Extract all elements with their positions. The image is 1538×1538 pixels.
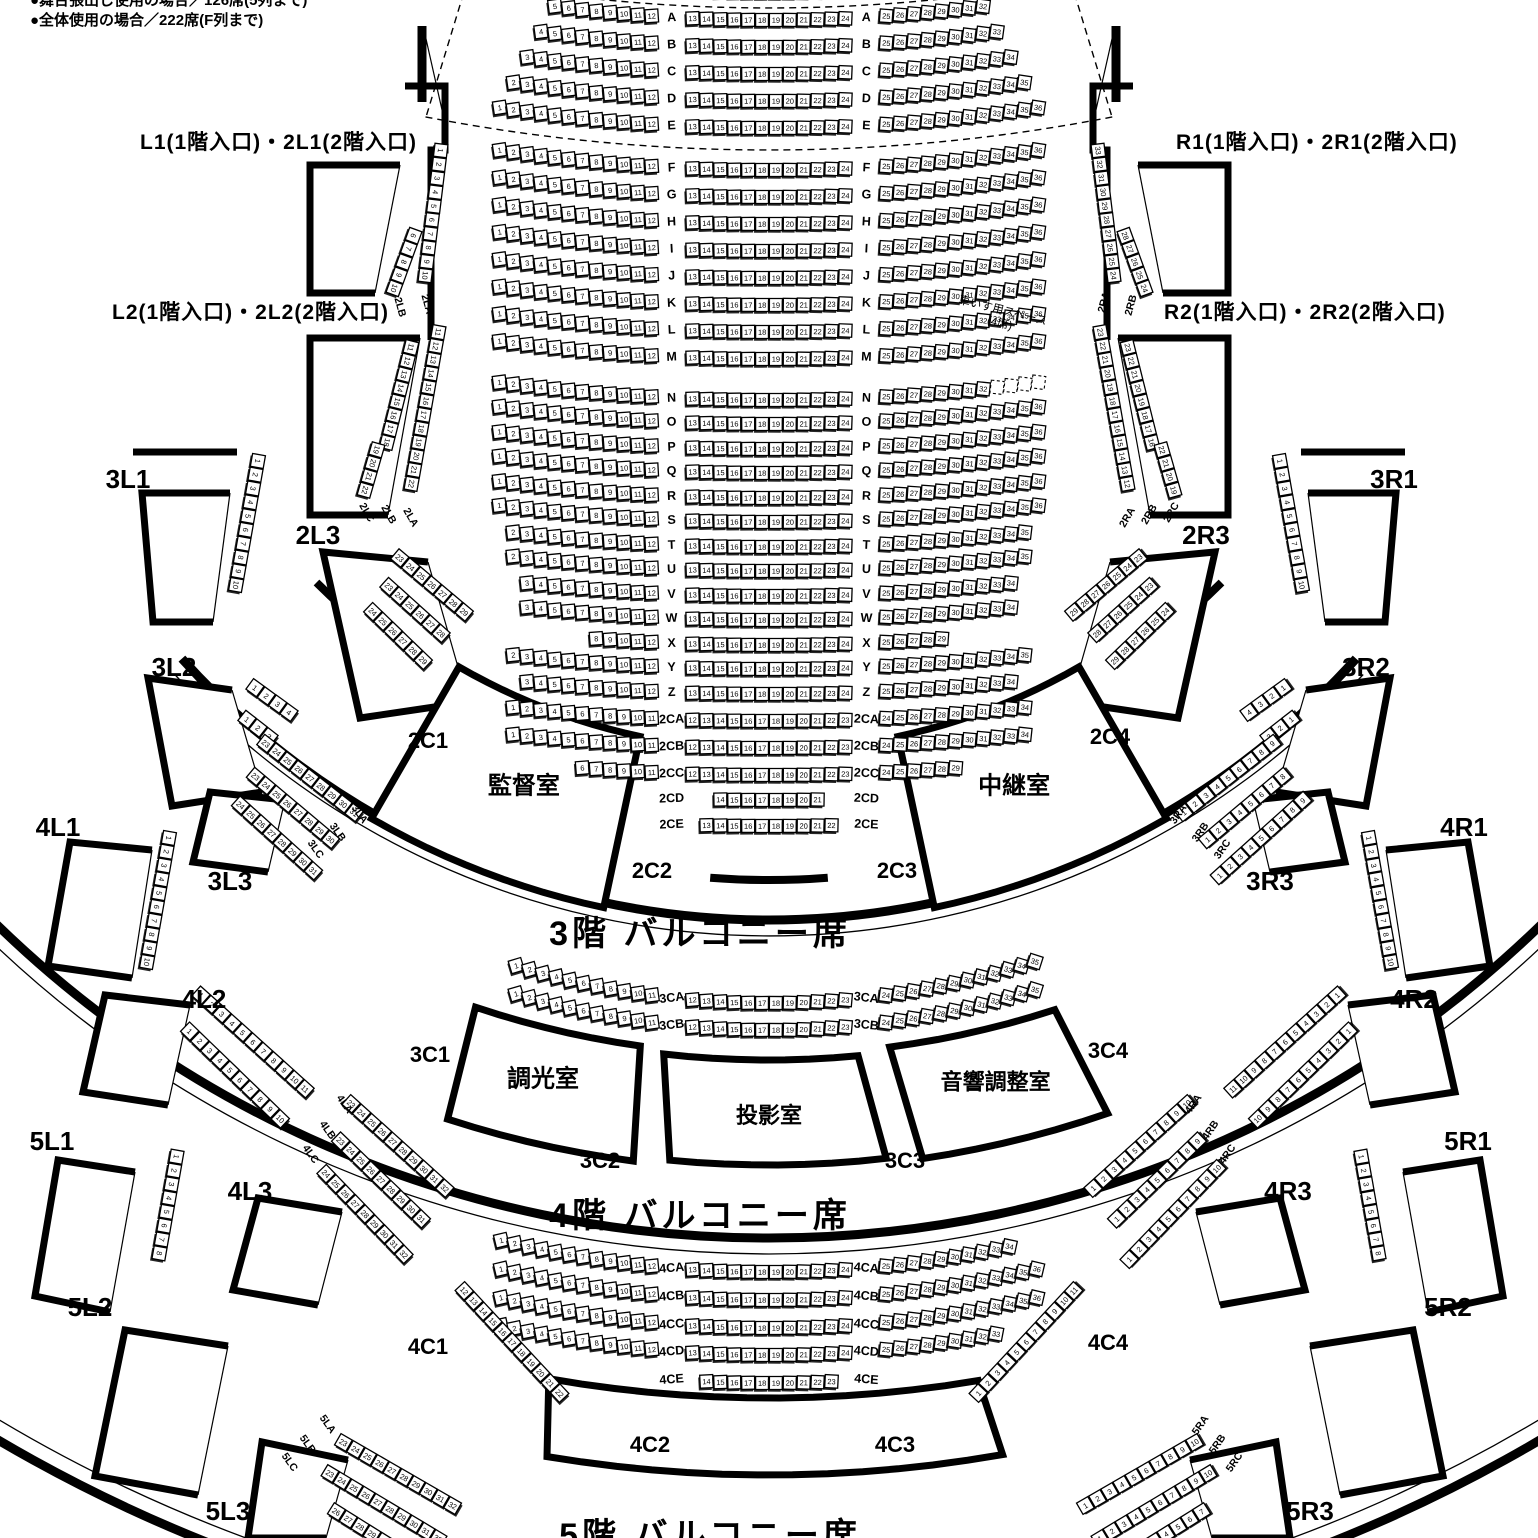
svg-text:19: 19 (772, 193, 780, 202)
svg-text:15: 15 (716, 42, 725, 51)
svg-text:18: 18 (758, 274, 766, 283)
seat: 20 (782, 217, 797, 232)
svg-text:20: 20 (786, 543, 794, 552)
seat: 19 (768, 217, 783, 232)
seat: 36 (1029, 399, 1045, 416)
seat: 17 (740, 638, 755, 653)
seat: 14 (698, 270, 713, 286)
svg-text:32: 32 (979, 556, 988, 566)
seat: 14 (698, 441, 713, 457)
seat: 13 (684, 661, 699, 677)
svg-text:15: 15 (716, 444, 725, 453)
svg-text:22: 22 (813, 273, 822, 282)
svg-text:8: 8 (594, 88, 599, 97)
svg-text:35: 35 (1020, 502, 1029, 512)
seat: 12 (643, 561, 658, 577)
seat: 9 (602, 33, 618, 50)
svg-text:26: 26 (896, 215, 905, 225)
row-label: K (862, 295, 872, 309)
seat: 4 (532, 176, 548, 193)
section-label: 2C3 (877, 858, 917, 883)
svg-text:23: 23 (827, 664, 836, 673)
svg-text:24: 24 (882, 714, 891, 723)
seat: 12 (643, 463, 658, 479)
seat: 21 (795, 1293, 810, 1309)
svg-text:15: 15 (716, 192, 725, 201)
seat: 34 (1002, 526, 1018, 543)
svg-text:14: 14 (702, 395, 711, 404)
seat: 14 (698, 216, 713, 232)
section-label: 4C1 (408, 1334, 448, 1359)
seat: 29 (932, 1251, 949, 1268)
seat: 11 (629, 511, 645, 527)
seat: 14 (698, 514, 713, 530)
section-label: 4C2 (630, 1432, 670, 1457)
seat: 26 (891, 239, 907, 255)
svg-text:21: 21 (813, 821, 822, 830)
svg-text:23: 23 (827, 246, 836, 255)
svg-text:28: 28 (923, 213, 932, 223)
row-label: Z (667, 685, 676, 699)
svg-text:13: 13 (688, 394, 697, 403)
seat: 6 (560, 28, 576, 45)
svg-text:5: 5 (552, 507, 557, 516)
svg-text:23: 23 (841, 742, 850, 751)
seat: 12 (1118, 476, 1135, 494)
seat: 28 (919, 411, 935, 427)
seat: 10 (416, 268, 432, 285)
seat: 18 (754, 1321, 769, 1336)
seat: 22 (809, 564, 824, 580)
svg-text:18: 18 (758, 665, 766, 674)
seat: 6 (560, 653, 576, 669)
svg-text:18: 18 (758, 616, 766, 625)
seat: 3 (518, 147, 534, 164)
svg-text:28: 28 (923, 413, 932, 423)
svg-text:16: 16 (730, 69, 739, 78)
seat: 27 (905, 34, 921, 50)
svg-text:12: 12 (688, 715, 697, 724)
svg-text:25: 25 (882, 514, 891, 523)
svg-text:23: 23 (827, 493, 836, 502)
seat: 14 (698, 687, 713, 703)
row-label: J (863, 268, 871, 282)
seat: 17 (740, 13, 755, 28)
seat: 10 (615, 320, 631, 336)
svg-text:8: 8 (594, 560, 599, 569)
seat: 15 (712, 325, 727, 341)
seat: 22 (809, 613, 824, 629)
seat: 9 (602, 319, 618, 335)
row-label: 4CA (853, 1260, 879, 1276)
seat: 25 (878, 439, 893, 455)
svg-text:14: 14 (702, 246, 711, 255)
seat: 16 (740, 996, 755, 1012)
seat: 24 (837, 11, 852, 27)
seat: 26 (892, 438, 908, 454)
seat: 12 (684, 767, 699, 783)
svg-text:30: 30 (951, 608, 960, 618)
seat: 4 (532, 257, 548, 274)
seat: 33 (988, 284, 1004, 301)
seat: 8 (588, 182, 604, 199)
seat: 14 (698, 1320, 713, 1336)
svg-text:6: 6 (566, 681, 571, 690)
seat: 25 (878, 684, 893, 700)
seat: 22 (402, 476, 419, 494)
svg-text:8: 8 (594, 438, 599, 447)
svg-text:29: 29 (937, 88, 946, 98)
seat: 8 (602, 736, 618, 752)
seat: 2 (518, 729, 534, 746)
seat: 16 (726, 1376, 741, 1392)
seat: 28 (919, 318, 935, 334)
row-label: 2CA (659, 711, 685, 726)
seat: 1 (504, 700, 520, 717)
seat: 11 (629, 89, 645, 105)
svg-text:32: 32 (993, 705, 1002, 715)
svg-text:17: 17 (744, 420, 752, 429)
svg-text:11: 11 (634, 65, 642, 75)
seat: 19 (768, 40, 783, 55)
seat: 13 (684, 563, 699, 579)
svg-text:13: 13 (688, 326, 697, 335)
seat: 18 (754, 466, 769, 481)
svg-text:30: 30 (951, 237, 960, 247)
seat: 3 (518, 201, 534, 218)
seat: 29 (933, 557, 949, 573)
seat: 5 (546, 26, 562, 43)
svg-text:23: 23 (827, 273, 836, 282)
svg-text:6: 6 (580, 709, 585, 718)
svg-text:20: 20 (786, 301, 794, 310)
svg-text:5: 5 (552, 655, 557, 664)
seat: 13 (684, 465, 699, 481)
svg-text:26: 26 (896, 588, 905, 597)
svg-text:7: 7 (580, 436, 585, 445)
svg-text:15: 15 (730, 743, 738, 752)
seat: 23 (823, 297, 838, 313)
svg-text:26: 26 (896, 514, 905, 523)
row-label: F (862, 160, 871, 174)
seat: 23 (823, 514, 838, 530)
svg-text:30: 30 (951, 346, 960, 356)
svg-text:8: 8 (594, 634, 599, 643)
seat: 30 (947, 207, 963, 224)
seat: 26 (891, 35, 907, 51)
seat: 2 (504, 401, 520, 418)
svg-text:10: 10 (633, 740, 642, 749)
svg-text:14: 14 (702, 327, 711, 336)
seat: 19 (768, 67, 783, 82)
row-label: N (667, 390, 677, 404)
seat: 15 (712, 1264, 727, 1280)
seat: 16 (740, 819, 755, 834)
svg-text:29: 29 (937, 658, 946, 668)
seat: 9 (602, 607, 618, 623)
seat: 14 (698, 612, 713, 628)
svg-text:28: 28 (923, 561, 932, 571)
svg-text:22: 22 (813, 123, 822, 132)
section-label: 4L2 (182, 984, 227, 1014)
seating-chart: { "canvas":{"w":1538,"h":1538,"bg":"#fff… (0, 0, 1538, 1538)
seat: 31 (975, 731, 991, 747)
seat: 18 (754, 67, 769, 82)
seat: 7 (574, 556, 590, 572)
seat: 15 (712, 491, 727, 507)
seat: 10 (615, 266, 631, 282)
seat: 28 (919, 509, 935, 525)
svg-text:27: 27 (910, 538, 919, 548)
seat: 22 (823, 819, 838, 835)
seat: 24 (877, 988, 894, 1005)
seat: 24 (837, 539, 852, 555)
seat: 8 (602, 763, 618, 779)
svg-text:25: 25 (882, 216, 891, 226)
seat: 2 (505, 102, 522, 119)
seat: 12 (643, 512, 658, 528)
row-label: Z (862, 685, 871, 699)
svg-text:18: 18 (758, 494, 766, 503)
svg-text:12: 12 (688, 769, 697, 778)
seat: 22 (809, 217, 824, 233)
seat: 13 (684, 120, 699, 136)
seat: 28 (918, 1253, 935, 1270)
seat: 13 (698, 741, 713, 757)
row-label: H (667, 214, 677, 228)
seat: 34 (1002, 576, 1018, 593)
section-label: 4C4 (1088, 1330, 1129, 1355)
seat: 18 (754, 163, 769, 178)
svg-text:26: 26 (896, 161, 905, 171)
svg-text:30: 30 (965, 708, 974, 718)
seat: 12 (643, 186, 659, 202)
svg-text:35: 35 (1020, 78, 1030, 88)
svg-text:14: 14 (702, 640, 711, 649)
seat: 17 (740, 613, 755, 628)
svg-text:18: 18 (758, 518, 766, 527)
seat: 29 (933, 681, 949, 697)
seat: 25 (878, 390, 893, 406)
seat: 18 (754, 13, 769, 28)
svg-text:23: 23 (827, 165, 836, 174)
svg-text:8: 8 (594, 115, 599, 124)
seat: 20 (782, 244, 797, 259)
seat: 4 (532, 284, 548, 301)
seat: 23 (823, 539, 838, 555)
svg-text:34: 34 (1006, 504, 1015, 514)
seat: 9 (602, 534, 618, 550)
svg-text:14: 14 (702, 41, 711, 50)
svg-text:24: 24 (841, 245, 850, 254)
seat: 10 (615, 239, 631, 255)
seat: 16 (726, 40, 741, 56)
svg-text:28: 28 (923, 267, 932, 277)
seat: 16 (726, 564, 741, 579)
seat: 16 (726, 613, 741, 628)
svg-text:18: 18 (758, 420, 766, 429)
svg-text:10: 10 (620, 414, 629, 424)
svg-text:28: 28 (923, 438, 932, 448)
seat: 29 (933, 263, 949, 279)
seat: 12 (643, 295, 658, 311)
svg-text:36: 36 (1033, 145, 1043, 155)
svg-text:15: 15 (716, 493, 725, 502)
svg-text:29: 29 (937, 388, 946, 398)
seat: 1 (491, 252, 508, 269)
seat: 16 (726, 442, 741, 457)
seat: 21 (809, 741, 824, 757)
svg-text:5: 5 (552, 458, 557, 467)
svg-text:32: 32 (978, 56, 987, 66)
seat: 5 (546, 579, 562, 596)
seat: 7 (574, 654, 590, 670)
row-label: 2CD (854, 791, 880, 806)
section-label: 4R3 (1264, 1176, 1312, 1206)
svg-text:20: 20 (786, 494, 794, 503)
seat: 8 (588, 85, 604, 102)
seat: 6 (560, 580, 576, 596)
svg-text:29: 29 (937, 585, 946, 595)
seat: 23 (823, 1263, 838, 1279)
seat: 29 (933, 410, 949, 426)
seat: 27 (919, 709, 935, 725)
svg-text:34: 34 (1006, 258, 1015, 268)
svg-text:26: 26 (896, 92, 905, 102)
svg-text:16: 16 (730, 96, 739, 105)
svg-text:17: 17 (744, 641, 752, 650)
seat: 28 (918, 1337, 934, 1354)
svg-text:9: 9 (608, 159, 613, 168)
seat: 30 (947, 262, 963, 279)
seat: 26 (891, 1313, 907, 1330)
seat: 15 (712, 40, 727, 56)
seat: 21 (795, 466, 810, 481)
seat: 18 (754, 352, 769, 367)
seat: 2 (504, 648, 520, 665)
svg-text:18: 18 (772, 744, 780, 753)
seat: 8 (150, 1245, 167, 1263)
seat: 14 (698, 351, 713, 367)
seat: 19 (768, 1265, 783, 1280)
seat: 13 (684, 12, 699, 28)
row-label: B (667, 37, 677, 51)
seat: 18 (768, 1023, 783, 1038)
seat: 6 (560, 531, 576, 547)
seat: 15 (712, 466, 727, 482)
seat: 12 (643, 610, 658, 626)
svg-text:34: 34 (1006, 578, 1015, 588)
svg-text:10: 10 (633, 767, 642, 776)
svg-text:28: 28 (923, 659, 932, 669)
svg-text:8: 8 (594, 511, 599, 520)
svg-text:15: 15 (730, 796, 738, 805)
svg-text:33: 33 (992, 81, 1001, 91)
svg-text:21: 21 (799, 542, 807, 551)
seat: 10 (138, 954, 155, 972)
seat: 26 (892, 487, 908, 503)
svg-text:32: 32 (979, 343, 988, 353)
seat: 18 (768, 741, 783, 756)
svg-text:27: 27 (909, 90, 918, 100)
svg-text:20: 20 (786, 16, 794, 25)
seat: 1 (491, 498, 507, 515)
svg-text:30: 30 (951, 319, 960, 329)
svg-text:4: 4 (538, 604, 543, 613)
seat: 34 (1002, 477, 1018, 494)
seat: 9 (602, 60, 618, 76)
svg-text:24: 24 (841, 14, 850, 23)
svg-text:33: 33 (992, 481, 1001, 491)
svg-text:20: 20 (786, 166, 794, 175)
room-label: 調光室 (507, 1064, 579, 1092)
seat: 20 (782, 67, 797, 82)
seat: 16 (726, 67, 741, 83)
seat: 13 (684, 514, 699, 530)
seat: 21 (795, 40, 810, 56)
svg-text:9: 9 (608, 294, 613, 303)
svg-text:7: 7 (580, 535, 585, 544)
svg-text:13: 13 (688, 122, 697, 131)
seat: 12 (643, 488, 658, 504)
svg-text:6: 6 (566, 656, 571, 665)
seat: 6 (574, 761, 590, 777)
svg-text:33: 33 (992, 27, 1001, 37)
svg-text:21: 21 (799, 419, 807, 428)
seat: 11 (629, 62, 645, 78)
section-label: 4R1 (1440, 812, 1488, 842)
seat: 15 (712, 638, 727, 654)
seat: 22 (809, 13, 824, 29)
seat: 11 (629, 1257, 645, 1274)
svg-text:9: 9 (608, 8, 613, 17)
svg-text:9: 9 (608, 414, 613, 423)
svg-text:20: 20 (799, 743, 807, 752)
seat: 8 (588, 606, 604, 622)
seat: 5 (546, 150, 562, 167)
seat: 25 (878, 240, 894, 256)
svg-text:15: 15 (716, 517, 725, 526)
seat: 22 (809, 94, 824, 110)
section-label: 3C4 (1088, 1038, 1129, 1063)
seat: 12 (643, 1315, 659, 1332)
row-label: H (862, 214, 872, 228)
svg-text:20: 20 (786, 396, 794, 405)
svg-text:21: 21 (799, 354, 807, 363)
svg-text:30: 30 (951, 5, 960, 15)
row-label: L (667, 322, 676, 336)
svg-text:18: 18 (758, 97, 766, 106)
seat: 26 (892, 511, 908, 527)
svg-text:22: 22 (813, 69, 822, 78)
svg-text:34: 34 (1006, 149, 1015, 159)
seat: 28 (919, 607, 935, 623)
svg-text:25: 25 (882, 351, 891, 360)
entrance-label-r1: R1(1階入口)・2R1(2階入口) (1176, 126, 1458, 156)
seat: 9 (602, 387, 618, 403)
seat: 28 (919, 485, 935, 501)
section-label: 4L1 (36, 812, 81, 842)
svg-text:18: 18 (758, 301, 766, 310)
seat: 31 (961, 505, 977, 521)
svg-text:29: 29 (937, 184, 946, 194)
seat: 9 (601, 210, 617, 226)
svg-text:8: 8 (594, 266, 599, 275)
seat: 6 (560, 555, 576, 571)
seat: 23 (823, 120, 838, 136)
svg-text:4: 4 (552, 707, 557, 716)
svg-text:22: 22 (813, 468, 822, 477)
